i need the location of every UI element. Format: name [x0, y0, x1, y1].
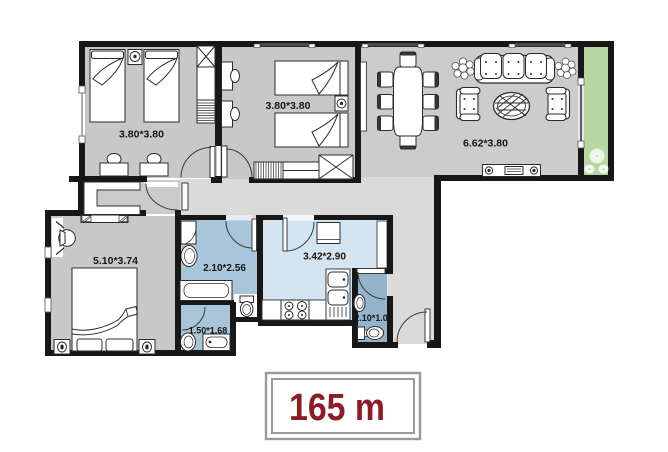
svg-text:3.80*3.80: 3.80*3.80 — [119, 129, 164, 141]
svg-text:3.42*2.90: 3.42*2.90 — [303, 252, 346, 263]
svg-text:1.50*1.68: 1.50*1.68 — [189, 326, 228, 336]
svg-text:3.80*3.80: 3.80*3.80 — [266, 100, 311, 112]
svg-text:2.10*1.0: 2.10*1.0 — [354, 313, 388, 323]
svg-text:165 m: 165 m — [289, 387, 385, 429]
svg-text:2.10*2.56: 2.10*2.56 — [203, 263, 246, 274]
svg-text:5.10*3.74: 5.10*3.74 — [93, 255, 138, 267]
svg-text:6.62*3.80: 6.62*3.80 — [463, 138, 508, 150]
